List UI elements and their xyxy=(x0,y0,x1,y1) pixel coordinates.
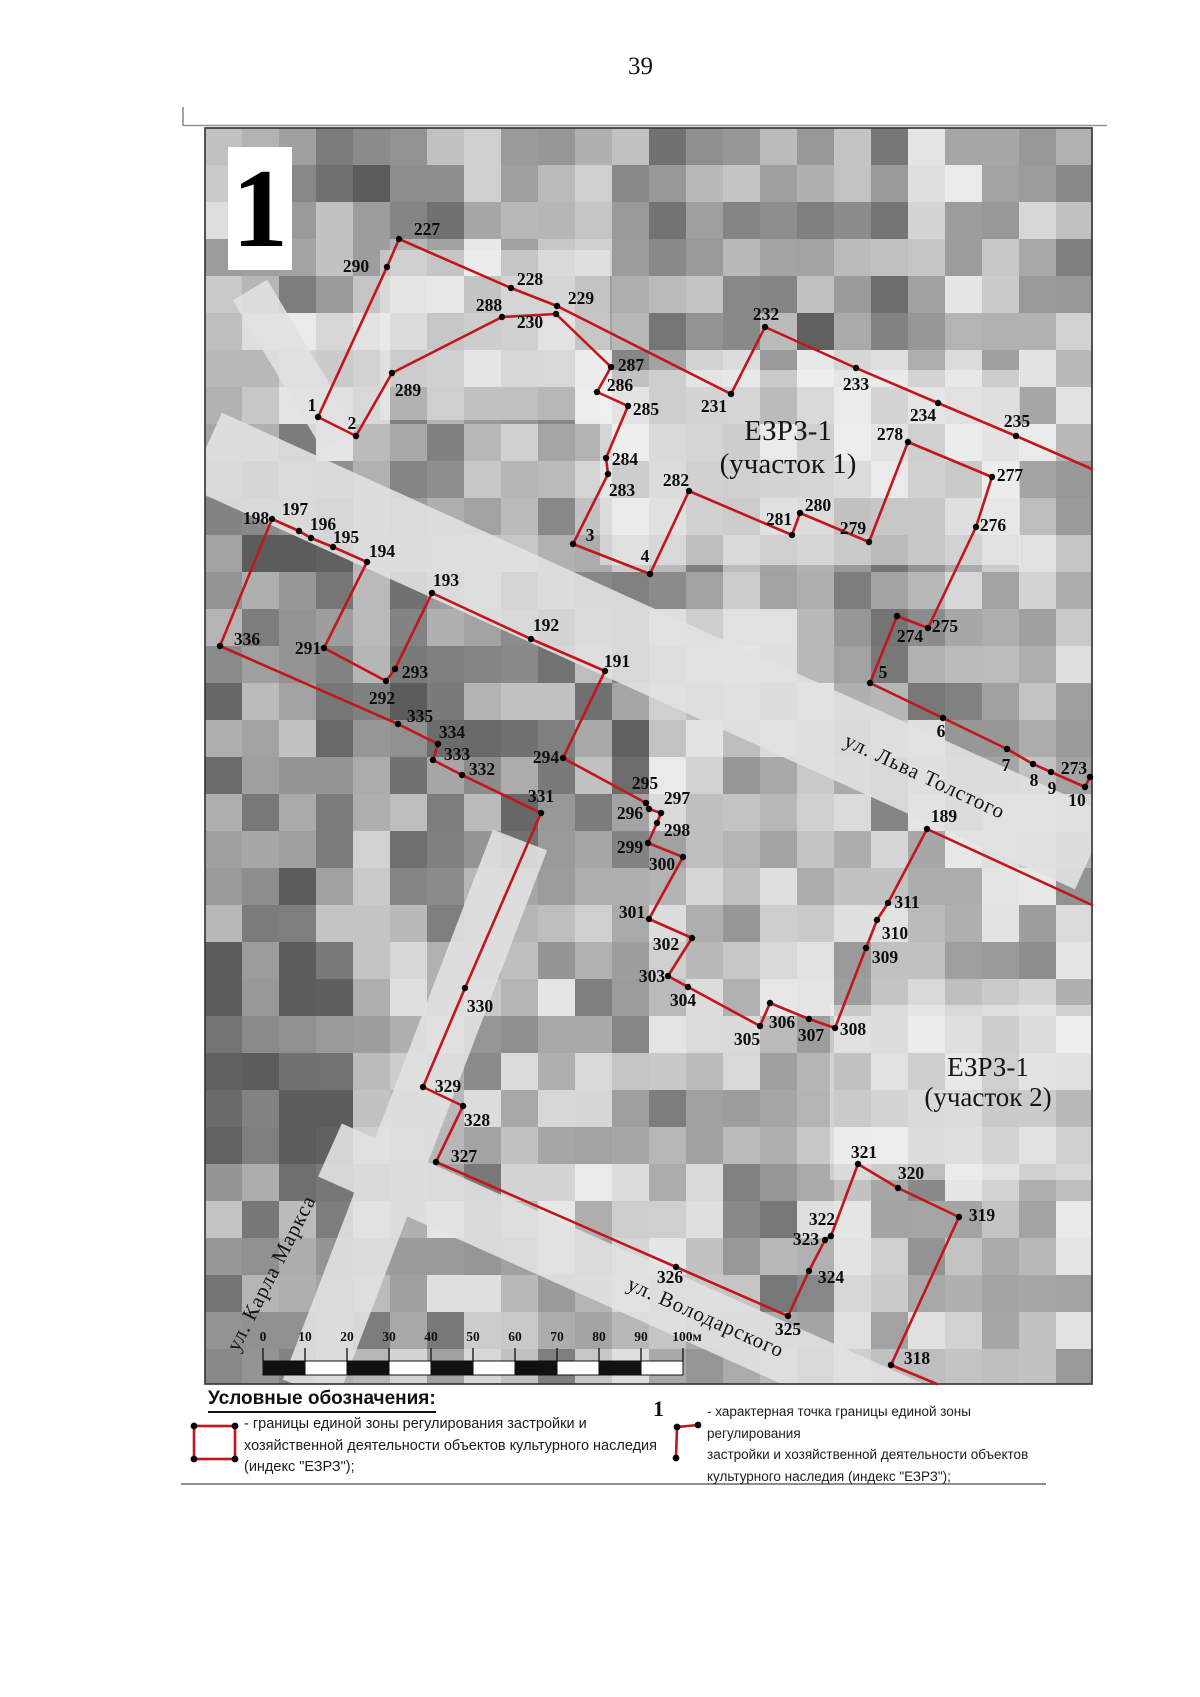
scale-label: 90 xyxy=(634,1329,648,1344)
point-label-332: 332 xyxy=(469,759,495,779)
point-label-331: 331 xyxy=(528,786,554,806)
point-label-306: 306 xyxy=(769,1012,796,1032)
point-label-232: 232 xyxy=(753,304,779,324)
zone-boundary-rect-symbol xyxy=(186,1419,246,1469)
point-label-284: 284 xyxy=(612,449,639,469)
point-label-323: 323 xyxy=(793,1229,820,1249)
point-label-334: 334 xyxy=(439,722,466,742)
point-label-330: 330 xyxy=(467,996,494,1016)
point-label-308: 308 xyxy=(840,1019,867,1039)
point-label-7: 7 xyxy=(1002,755,1011,775)
point-label-302: 302 xyxy=(653,934,679,954)
point-label-304: 304 xyxy=(670,990,697,1010)
point-label-290: 290 xyxy=(343,256,370,276)
point-label-195: 195 xyxy=(333,527,360,547)
point-label-322: 322 xyxy=(809,1209,835,1229)
legend-item-boundary-text: - границы единой зоны регулирования заст… xyxy=(244,1414,674,1479)
point-label-311: 311 xyxy=(894,892,919,912)
point-label-288: 288 xyxy=(476,295,503,315)
point-label-294: 294 xyxy=(533,747,560,767)
svg-text:(участок 2): (участок 2) xyxy=(924,1082,1051,1112)
point-label-6: 6 xyxy=(937,721,946,741)
legend-item-point-text: - характерная точка границы единой зоны … xyxy=(707,1401,1062,1487)
point-label-193: 193 xyxy=(433,570,460,590)
point-label-196: 196 xyxy=(310,514,337,534)
point-label-189: 189 xyxy=(931,806,958,826)
point-label-228: 228 xyxy=(517,269,544,289)
point-label-293: 293 xyxy=(402,662,429,682)
point-label-229: 229 xyxy=(568,288,595,308)
scale-label: 10 xyxy=(298,1329,312,1344)
point-label-287: 287 xyxy=(618,355,645,375)
point-label-273: 273 xyxy=(1061,758,1088,778)
scale-label: 20 xyxy=(340,1329,354,1344)
point-label-279: 279 xyxy=(840,518,867,538)
point-label-292: 292 xyxy=(369,688,395,708)
point-label-231: 231 xyxy=(701,396,727,416)
scale-label: 30 xyxy=(382,1329,396,1344)
point-label-194: 194 xyxy=(369,541,396,561)
point-label-291: 291 xyxy=(295,638,321,658)
point-label-3: 3 xyxy=(586,525,595,545)
point-label-2: 2 xyxy=(348,413,357,433)
point-label-328: 328 xyxy=(464,1110,491,1130)
point-label-327: 327 xyxy=(451,1146,478,1166)
point-label-324: 324 xyxy=(818,1267,845,1287)
scale-label: 60 xyxy=(508,1329,522,1344)
point-label-274: 274 xyxy=(897,626,924,646)
point-label-197: 197 xyxy=(282,499,309,519)
document-page: 1123456789101891911921931941951961971982… xyxy=(0,0,1200,1697)
point-label-320: 320 xyxy=(898,1163,925,1183)
map-plate-label: 1 xyxy=(228,147,292,271)
scale-label: 50 xyxy=(466,1329,480,1344)
point-label-303: 303 xyxy=(639,966,666,986)
point-label-10: 10 xyxy=(1068,790,1086,810)
point-label-235: 235 xyxy=(1004,411,1031,431)
point-label-310: 310 xyxy=(882,923,909,943)
point-label-335: 335 xyxy=(407,706,434,726)
point-label-230: 230 xyxy=(517,312,544,332)
point-label-275: 275 xyxy=(932,616,959,636)
point-label-333: 333 xyxy=(444,744,471,764)
point-label-321: 321 xyxy=(851,1142,877,1162)
point-label-233: 233 xyxy=(843,374,870,394)
point-label-289: 289 xyxy=(395,380,422,400)
point-label-281: 281 xyxy=(766,509,792,529)
svg-text:(участок 1): (участок 1) xyxy=(720,448,857,480)
point-label-307: 307 xyxy=(798,1025,825,1045)
point-label-4: 4 xyxy=(641,546,650,566)
point-label-191: 191 xyxy=(604,651,630,671)
scale-label: 0 xyxy=(260,1329,267,1344)
point-label-298: 298 xyxy=(664,820,691,840)
legend-heading: Условные обозначения: xyxy=(208,1388,436,1413)
point-label-295: 295 xyxy=(632,773,659,793)
point-label-283: 283 xyxy=(609,480,636,500)
point-label-300: 300 xyxy=(649,854,676,874)
scale-label: 70 xyxy=(550,1329,564,1344)
point-label-234: 234 xyxy=(910,405,937,425)
point-label-276: 276 xyxy=(980,515,1007,535)
boundary-point-marker-symbol xyxy=(662,1410,702,1466)
scale-label: 40 xyxy=(424,1329,438,1344)
point-label-319: 319 xyxy=(969,1205,996,1225)
point-label-297: 297 xyxy=(664,788,691,808)
svg-text:1: 1 xyxy=(232,147,288,271)
svg-text:ЕЗРЗ-1: ЕЗРЗ-1 xyxy=(947,1052,1029,1082)
point-label-192: 192 xyxy=(533,615,559,635)
point-label-198: 198 xyxy=(243,508,270,528)
point-label-329: 329 xyxy=(435,1076,462,1096)
point-label-5: 5 xyxy=(879,662,888,682)
point-label-318: 318 xyxy=(904,1348,931,1368)
point-label-299: 299 xyxy=(617,837,644,857)
point-label-280: 280 xyxy=(805,495,832,515)
point-label-227: 227 xyxy=(414,219,441,239)
point-label-282: 282 xyxy=(663,470,689,490)
point-label-336: 336 xyxy=(234,629,261,649)
point-label-301: 301 xyxy=(619,902,645,922)
point-label-8: 8 xyxy=(1030,770,1039,790)
point-label-285: 285 xyxy=(633,399,660,419)
point-label-296: 296 xyxy=(617,803,644,823)
scale-label: 100м xyxy=(672,1329,701,1344)
point-label-309: 309 xyxy=(872,947,899,967)
scale-label: 80 xyxy=(592,1329,606,1344)
point-label-277: 277 xyxy=(997,465,1024,485)
page-number: 39 xyxy=(628,53,653,81)
point-label-278: 278 xyxy=(877,424,904,444)
point-label-305: 305 xyxy=(734,1029,761,1049)
point-label-1: 1 xyxy=(308,395,317,415)
point-label-9: 9 xyxy=(1048,778,1057,798)
svg-text:ЕЗРЗ-1: ЕЗРЗ-1 xyxy=(744,415,832,447)
point-label-286: 286 xyxy=(607,375,634,395)
